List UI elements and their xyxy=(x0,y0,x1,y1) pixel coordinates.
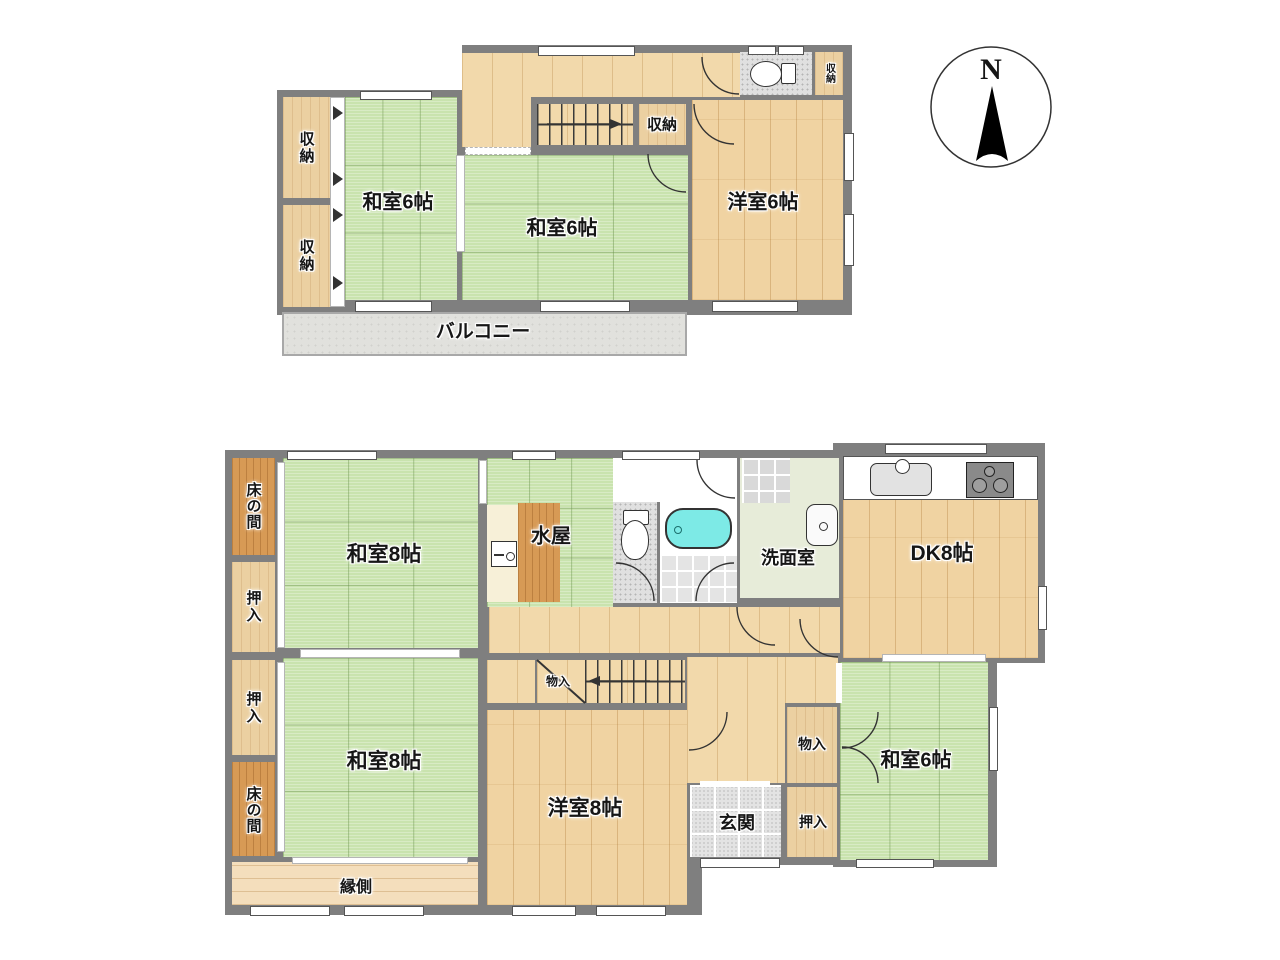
room-label: 押入 xyxy=(799,812,827,832)
room-label: 和室6帖 xyxy=(526,212,597,241)
window xyxy=(712,301,798,312)
window xyxy=(512,451,556,460)
room-label: バルコニー xyxy=(436,317,531,344)
room-label: 和室8帖 xyxy=(347,538,422,568)
room-label: 和室8帖 xyxy=(347,745,422,775)
sliding-door-track xyxy=(465,147,531,155)
room-label: 洋室6帖 xyxy=(727,186,798,215)
compass-label: N xyxy=(980,53,1002,87)
stove-icon xyxy=(966,462,1014,498)
room-label: 物入 xyxy=(798,734,826,754)
window xyxy=(360,91,432,100)
window xyxy=(540,301,630,312)
hall-1f-genkan xyxy=(687,657,785,783)
fusuma-track xyxy=(300,649,460,658)
room-label: 洗面室 xyxy=(761,544,815,570)
sliding-door-track xyxy=(277,662,285,852)
room-label: 縁側 xyxy=(340,873,372,897)
room-label: 玄関 xyxy=(719,809,755,835)
window xyxy=(287,451,377,460)
room-label: 物入 xyxy=(546,673,570,690)
room-label: 収納 xyxy=(296,131,317,165)
sliding-door-track xyxy=(330,97,345,307)
mizuya-cabinet xyxy=(518,503,560,602)
sliding-door-track xyxy=(479,460,487,504)
room-label: 収納 xyxy=(822,63,837,83)
room-label: 押入 xyxy=(243,691,264,725)
sliding-door-track xyxy=(292,857,468,864)
window xyxy=(596,906,666,916)
room-label: 収納 xyxy=(296,239,317,273)
window xyxy=(1038,586,1047,630)
hall-2f-side xyxy=(462,97,531,147)
window xyxy=(844,133,854,181)
sliding-door-track xyxy=(277,462,285,648)
room-dk xyxy=(843,500,1038,658)
stair-steps xyxy=(585,660,685,703)
toilet-icon xyxy=(620,510,650,562)
entrance-door xyxy=(700,858,780,868)
room-label: 床の間 xyxy=(243,786,264,834)
bath-tile xyxy=(660,554,737,603)
window xyxy=(344,906,424,916)
window xyxy=(844,214,854,266)
hall-1f-main xyxy=(489,607,840,653)
room-label: DK8帖 xyxy=(910,537,973,567)
washbasin-icon xyxy=(806,504,838,546)
hall-1f-left xyxy=(487,660,535,703)
hall-1f-east xyxy=(785,657,838,703)
door-opening xyxy=(836,663,842,703)
door-opening xyxy=(700,781,770,787)
bathtub-icon xyxy=(665,508,732,549)
sliding-door-track xyxy=(882,654,986,662)
window xyxy=(989,707,998,771)
sink-icon xyxy=(491,541,517,567)
window xyxy=(622,451,700,460)
hall-2f xyxy=(462,53,740,97)
stair-steps xyxy=(537,104,633,145)
window xyxy=(512,906,576,916)
vestibule xyxy=(613,458,737,502)
window xyxy=(778,46,804,55)
room-label: 洋室8帖 xyxy=(548,792,623,822)
room-label: 和室6帖 xyxy=(880,744,951,773)
stairs-2f xyxy=(537,104,633,145)
window xyxy=(856,859,934,868)
room-label: 和室6帖 xyxy=(362,186,433,215)
kitchen-sink-icon xyxy=(870,463,932,496)
sliding-door-track xyxy=(456,155,465,252)
toilet-icon xyxy=(750,61,796,87)
room-label: 床の間 xyxy=(243,482,264,530)
room-label: 押入 xyxy=(243,590,264,624)
floor-plan-canvas: 収納 収納 和室6帖 和室6帖 収納 収納 洋室6帖 バルコニー N 床の間 押… xyxy=(0,0,1280,960)
window xyxy=(355,301,432,312)
window xyxy=(538,46,635,56)
window xyxy=(250,906,330,916)
window xyxy=(885,444,987,454)
washroom-tile xyxy=(742,458,790,503)
window xyxy=(748,46,776,55)
room-label: 水屋 xyxy=(531,520,571,549)
room-label: 収納 xyxy=(647,114,677,135)
